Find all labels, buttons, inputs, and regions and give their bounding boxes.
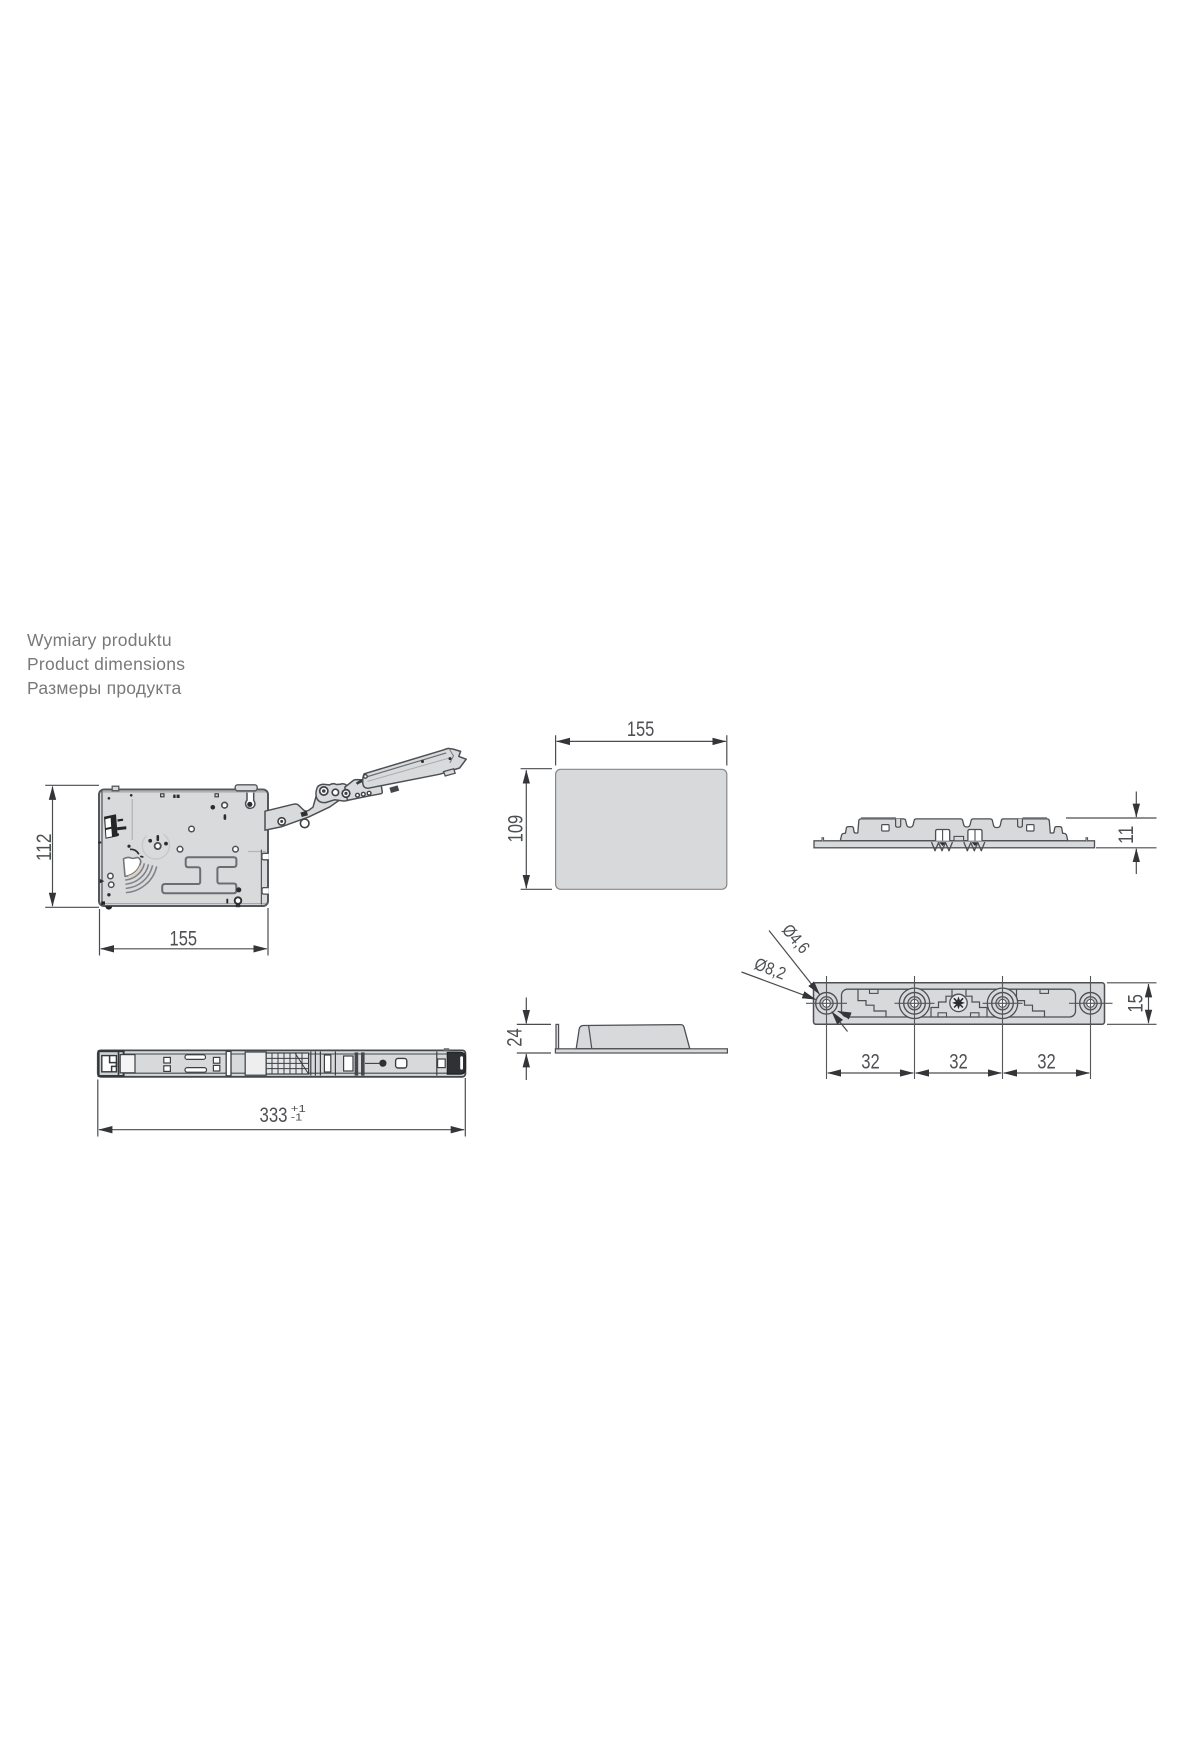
svg-text:24: 24: [503, 1028, 526, 1047]
svg-text:11: 11: [1115, 826, 1138, 845]
svg-text:109: 109: [505, 815, 528, 843]
svg-text:Размеры продукта: Размеры продукта: [27, 678, 182, 698]
svg-text:333: 333: [260, 1104, 288, 1127]
svg-text:Ø4,6: Ø4,6: [778, 920, 814, 957]
svg-text:155: 155: [170, 928, 198, 951]
svg-text:32: 32: [949, 1050, 968, 1073]
svg-text:112: 112: [33, 834, 56, 862]
svg-text:Wymiary produktu: Wymiary produktu: [27, 630, 172, 650]
svg-text:32: 32: [861, 1050, 880, 1073]
svg-text:32: 32: [1037, 1050, 1056, 1073]
svg-text:Ø8,2: Ø8,2: [752, 954, 789, 984]
svg-text:15: 15: [1125, 994, 1148, 1013]
svg-text:155: 155: [627, 718, 655, 741]
svg-text:Product dimensions: Product dimensions: [27, 654, 185, 674]
svg-text:-1: -1: [291, 1112, 303, 1124]
